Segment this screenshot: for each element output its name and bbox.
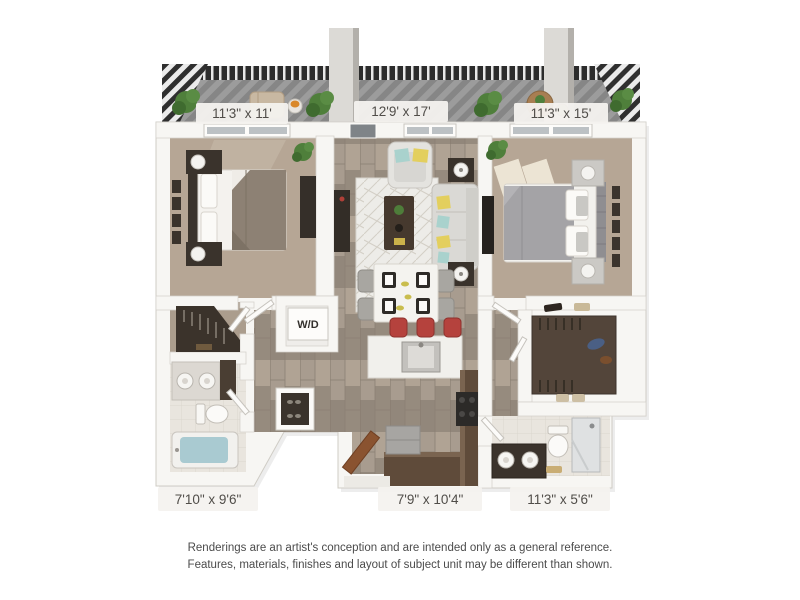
toilet-icon xyxy=(548,426,568,457)
dimension-label-bedroom-left: 11'3" x 11' xyxy=(212,106,272,121)
armchair-icon xyxy=(388,142,432,188)
bed-icon xyxy=(188,170,286,250)
washer-dryer-label: W/D xyxy=(297,319,318,331)
floor-plan-page: W/D xyxy=(0,0,800,600)
dimension-label-living-dining: 12'9' x 17' xyxy=(371,104,431,119)
closet-right xyxy=(532,303,616,402)
bar-stool-icons xyxy=(390,318,461,337)
vanity-icon xyxy=(172,360,236,400)
closet-right-floor-icon xyxy=(532,316,616,394)
shower-icon xyxy=(572,418,600,472)
dimension-label-bedroom-right: 11'3" x 15' xyxy=(531,106,592,121)
disclaimer-line-2: Features, materials, finishes and layout… xyxy=(0,557,800,574)
laundry-closet: W/D xyxy=(276,296,338,352)
toilet-icon xyxy=(196,404,228,424)
bathtub-icon xyxy=(172,432,238,468)
media-console-icon xyxy=(334,190,350,252)
disclaimer: Renderings are an artist's conception an… xyxy=(0,540,800,574)
bath-mat-icon xyxy=(546,466,562,473)
bed-icon xyxy=(504,182,606,262)
floor-plan-rendering: W/D xyxy=(0,0,800,600)
refrigerator-icon xyxy=(386,426,420,454)
entry-threshold xyxy=(344,476,390,487)
clothing-item-icon xyxy=(600,356,612,364)
side-table-icon xyxy=(448,158,474,182)
coffee-table-icon xyxy=(384,196,414,250)
dimension-label-bathroom-right: 11'3" x 5'6" xyxy=(527,492,593,507)
balcony-door-icon xyxy=(350,124,376,138)
wall-art-icons xyxy=(612,186,620,267)
range-icon xyxy=(456,392,478,426)
entry-console-icon xyxy=(276,388,314,430)
kitchen-island-icon xyxy=(368,336,462,378)
disclaimer-line-1: Renderings are an artist's conception an… xyxy=(0,540,800,557)
ensuite-corridor-floor xyxy=(492,310,518,416)
tv-console-icon xyxy=(482,196,494,254)
dresser-icon xyxy=(300,176,316,238)
vanity-icon xyxy=(492,444,546,478)
sofa-icon xyxy=(432,184,478,270)
dimension-label-bathroom-left: 7'10" x 9'6" xyxy=(175,492,242,507)
dimension-label-kitchen-entry: 7'9" x 10'4" xyxy=(397,492,464,507)
